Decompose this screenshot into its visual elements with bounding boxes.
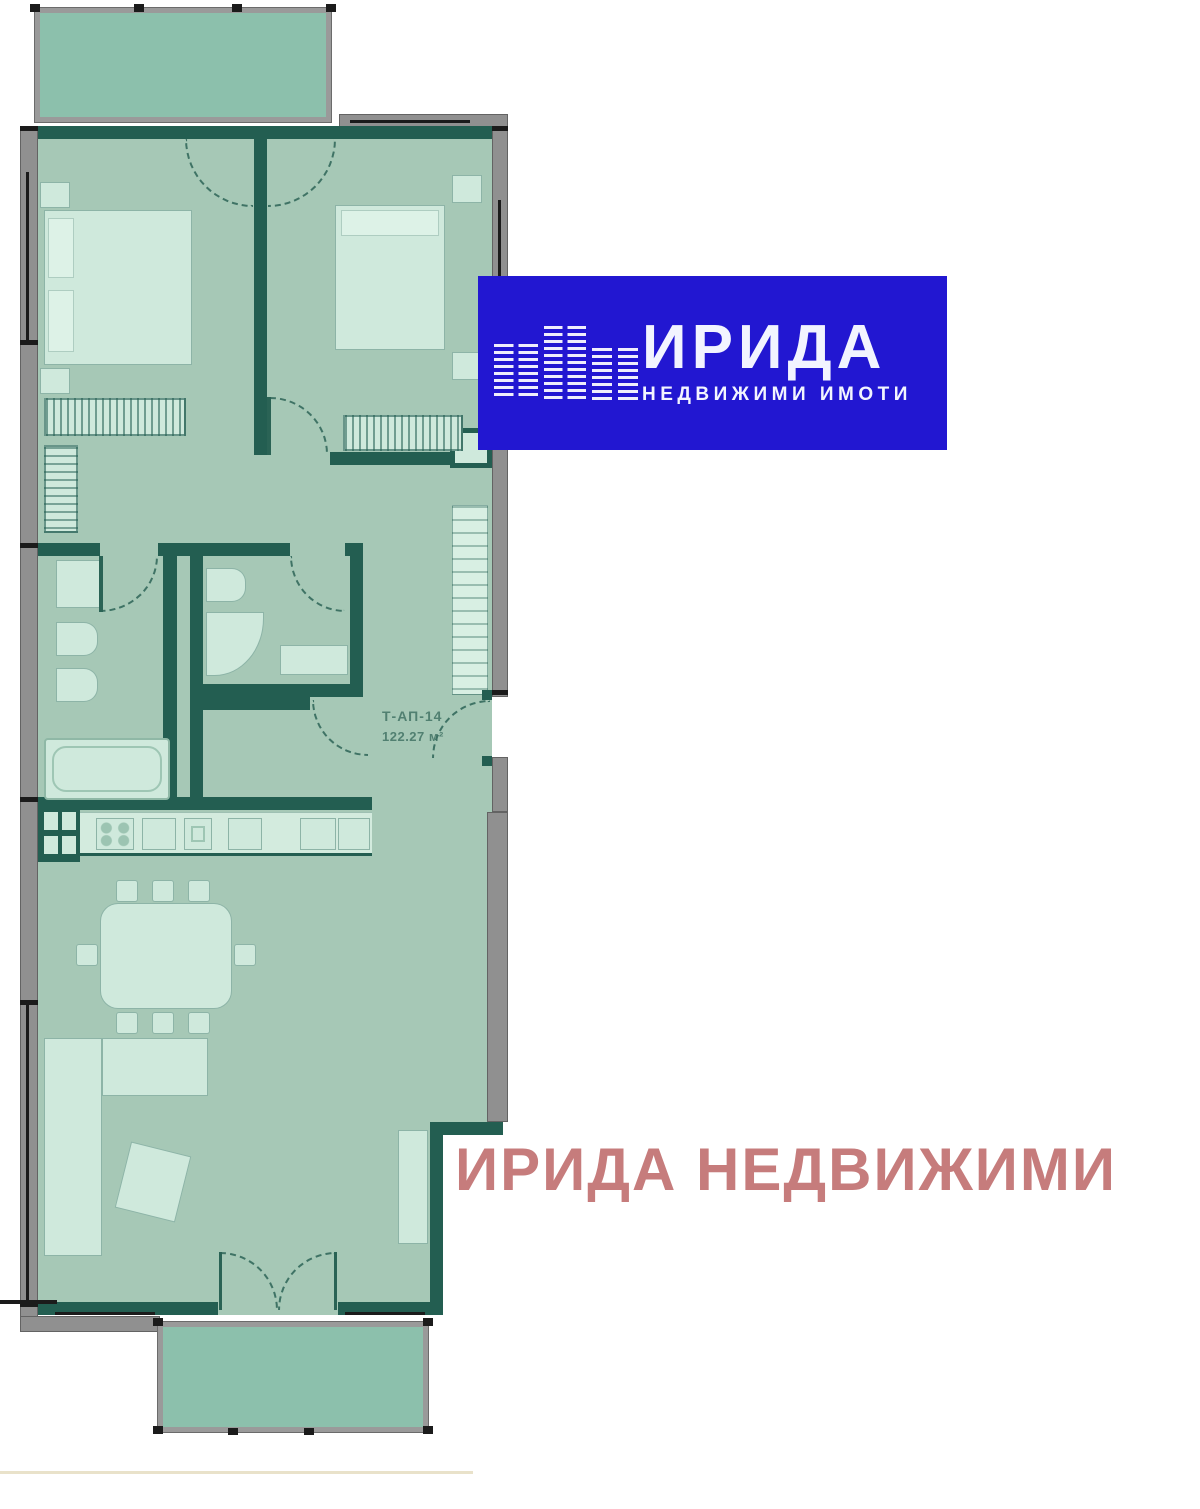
sofa <box>44 1038 102 1256</box>
shaft-window <box>38 806 80 862</box>
door-leaf <box>219 1252 222 1310</box>
hall-closet <box>452 505 488 695</box>
nightstand <box>40 182 70 208</box>
sofa <box>102 1038 208 1096</box>
window <box>345 1312 425 1315</box>
window <box>55 1312 155 1315</box>
nightstand <box>452 175 482 203</box>
logo-title: ИРИДА <box>642 316 912 380</box>
building-tower-icon <box>592 348 638 400</box>
railing-post <box>423 1426 433 1434</box>
wardrobe <box>343 415 463 451</box>
building-tower-icon <box>494 344 538 400</box>
chair <box>188 1012 210 1034</box>
balcony-top <box>35 8 331 122</box>
logo-text: ИРИДА НЕДВИЖИМИ ИМОТИ <box>642 316 912 406</box>
chair <box>234 944 256 966</box>
kitchen-cabinet <box>142 818 176 850</box>
chair <box>188 880 210 902</box>
wall-segment <box>430 1122 443 1315</box>
watermark-text: ИРИДА НЕДВИЖИМИ <box>455 1134 1117 1206</box>
floorplan-page: Т-АП-14 122.27 м² ИРИДА НЕДВИЖИМИ ИМОТИ … <box>0 0 1200 1509</box>
railing-post <box>326 4 336 12</box>
wardrobe <box>44 445 78 533</box>
agency-logo: ИРИДА НЕДВИЖИМИ ИМОТИ <box>478 276 947 450</box>
balcony-bottom <box>158 1322 428 1432</box>
wall-tick <box>20 1000 38 1005</box>
railing-post <box>134 4 144 12</box>
wardrobe <box>44 398 186 436</box>
door-leaf <box>267 397 271 455</box>
wall-segment <box>203 684 350 697</box>
railing-post <box>232 4 242 12</box>
kitchen-sink <box>184 818 212 850</box>
pillow <box>48 290 74 352</box>
bidet <box>56 668 98 702</box>
chair <box>152 880 174 902</box>
wall-tick <box>20 340 38 345</box>
window <box>26 1002 29 1300</box>
building-tower-icon <box>544 326 586 400</box>
wall-tick <box>492 126 508 131</box>
unit-area: 122.27 м² <box>382 727 502 747</box>
unit-label: Т-АП-14 122.27 м² <box>382 706 502 747</box>
wall-tick <box>492 690 508 695</box>
stove-hob <box>96 818 134 850</box>
wall-segment <box>20 126 38 1332</box>
washbasin <box>56 560 100 608</box>
sill-line <box>0 1300 57 1304</box>
wall-segment <box>203 697 310 710</box>
wall-tick <box>20 126 38 131</box>
door-frame <box>482 756 492 766</box>
chair <box>152 1012 174 1034</box>
unit-number: Т-АП-14 <box>382 706 502 727</box>
chair <box>76 944 98 966</box>
toilet <box>56 622 98 656</box>
wall-segment <box>487 812 508 1122</box>
chair <box>116 1012 138 1034</box>
window <box>350 120 470 123</box>
dining-table <box>100 903 232 1009</box>
railing-post <box>153 1426 163 1434</box>
chair <box>116 880 138 902</box>
pillow <box>48 218 74 278</box>
wall-segment <box>350 556 363 697</box>
washbasin <box>280 645 348 675</box>
wall-segment <box>492 757 508 812</box>
buildings-icon <box>494 322 644 400</box>
wall-tick <box>20 797 38 802</box>
toilet <box>206 568 246 602</box>
pillow <box>341 210 439 236</box>
railing-post <box>30 4 40 12</box>
wall-segment <box>345 543 363 556</box>
railing-post <box>153 1318 163 1326</box>
wall-segment <box>254 139 267 455</box>
wall-segment <box>38 543 100 556</box>
bathtub <box>44 738 170 800</box>
page-divider-line <box>0 1471 473 1474</box>
wall-segment <box>190 556 203 810</box>
wall-segment <box>38 126 492 139</box>
wall-segment <box>20 1316 160 1332</box>
wall-tick <box>20 543 38 548</box>
kitchen-cabinet <box>338 818 370 850</box>
kitchen-cabinet <box>300 818 336 850</box>
door-frame <box>482 690 492 700</box>
kitchen-cabinet <box>228 818 262 850</box>
nightstand <box>40 368 70 394</box>
logo-subtitle: НЕДВИЖИМИ ИМОТИ <box>642 384 912 406</box>
wall-segment <box>158 543 290 556</box>
tv-stand <box>398 1130 428 1244</box>
railing-post <box>228 1428 238 1435</box>
railing-post <box>423 1318 433 1326</box>
window <box>26 172 29 340</box>
railing-post <box>304 1428 314 1435</box>
door-leaf <box>99 556 103 612</box>
door-leaf <box>334 1252 337 1310</box>
